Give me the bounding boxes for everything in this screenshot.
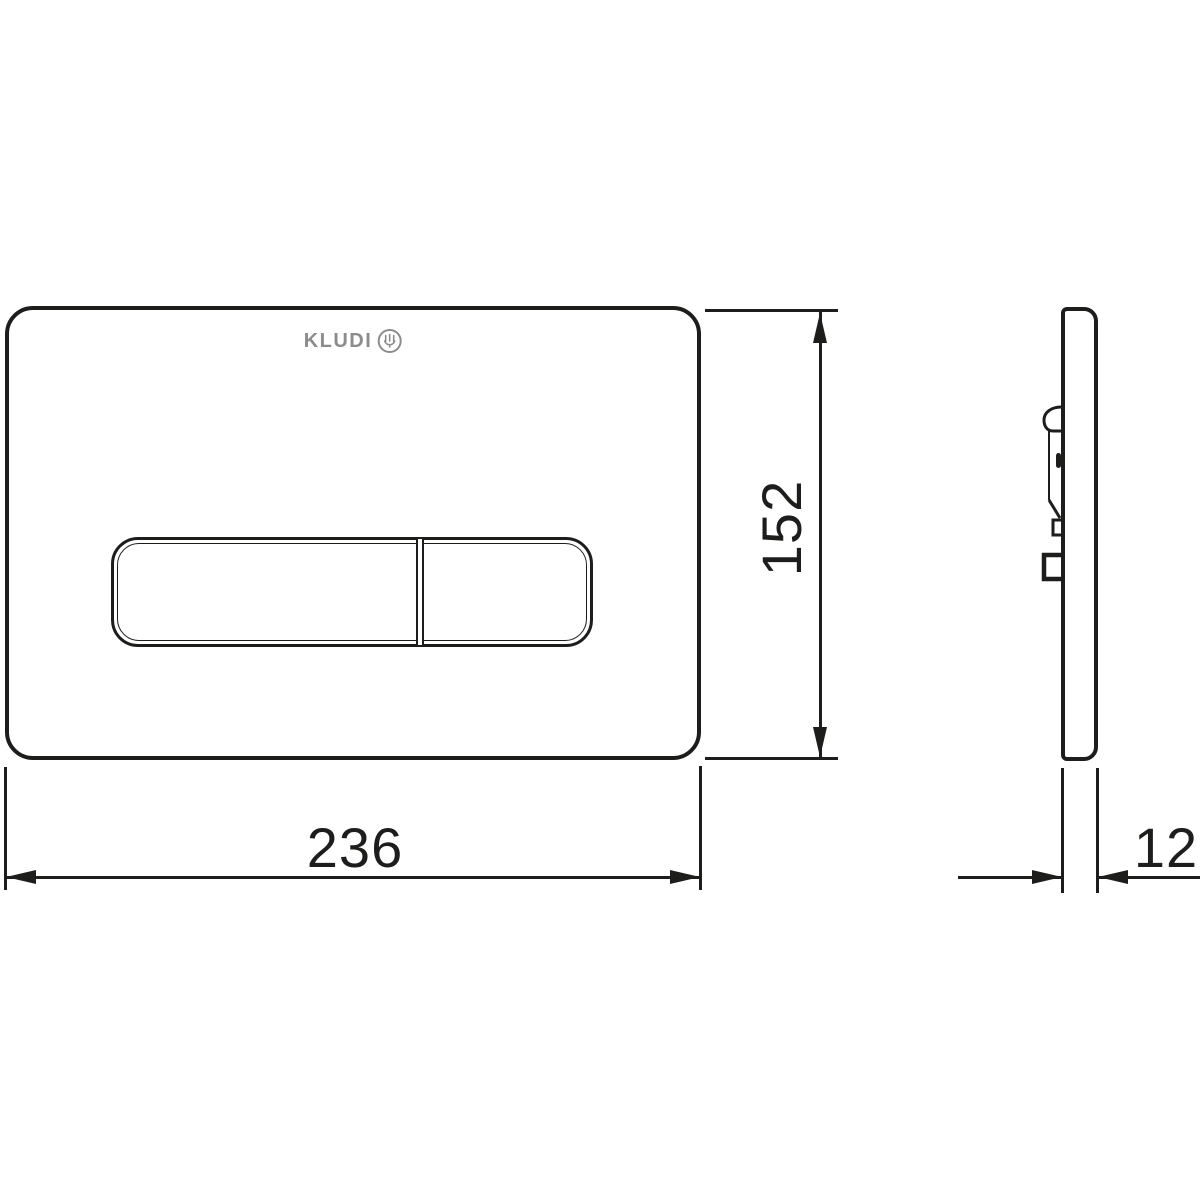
kludi-emblem-icon bbox=[376, 328, 402, 354]
flush-button-inner-outline bbox=[117, 543, 587, 641]
height-dimension-label: 152 bbox=[754, 480, 810, 576]
height-arrow-up-icon bbox=[813, 313, 827, 343]
height-dimension-line bbox=[819, 312, 822, 758]
brand-logo-text: KLUDI bbox=[304, 330, 373, 353]
flush-button-divider bbox=[416, 539, 424, 645]
mounting-clips-profile bbox=[1030, 396, 1066, 596]
flush-plate-side-view bbox=[1061, 307, 1098, 761]
flush-button-group bbox=[111, 537, 593, 647]
width-arrow-left-icon bbox=[6, 870, 36, 884]
depth-arrow-right-icon bbox=[1032, 870, 1062, 884]
height-dimension-label-wrap: 152 bbox=[752, 448, 812, 608]
width-dimension-label: 236 bbox=[255, 820, 455, 876]
depth-arrow-left-icon bbox=[1098, 870, 1128, 884]
technical-drawing-canvas: KLUDI 152 236 bbox=[0, 0, 1200, 1200]
width-arrow-right-icon bbox=[670, 870, 700, 884]
depth-dimension-label: 12 bbox=[1128, 820, 1200, 876]
height-arrow-down-icon bbox=[813, 727, 827, 757]
brand-logo: KLUDI bbox=[304, 328, 403, 354]
flush-plate-front-view: KLUDI bbox=[5, 306, 701, 760]
